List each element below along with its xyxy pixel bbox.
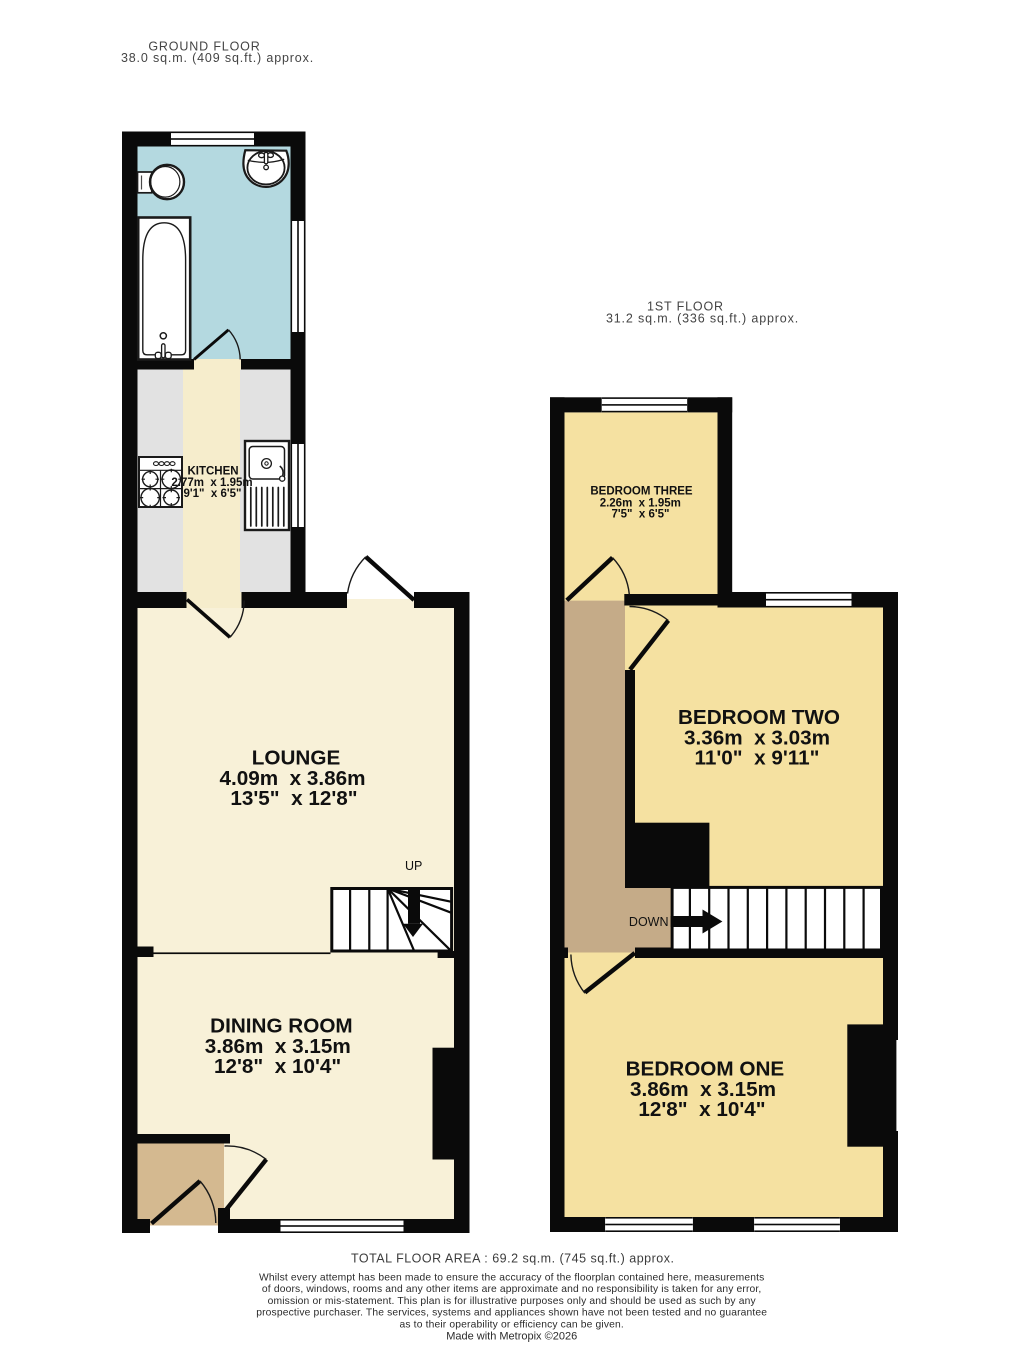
svg-text:omission or mis-statement. Thi: omission or mis-statement. This plan is …	[268, 1296, 757, 1307]
svg-text:9'1" x 6'5": 9'1" x 6'5"	[184, 488, 242, 500]
svg-text:prospective purchaser. The ser: prospective purchaser. The services, sys…	[256, 1308, 767, 1319]
svg-text:Whilst every attempt has been: Whilst every attempt has been made to en…	[259, 1272, 764, 1283]
svg-text:Made with Metropix ©2026: Made with Metropix ©2026	[446, 1331, 577, 1343]
svg-text:31.2 sq.m. (336 sq.ft.) approx: 31.2 sq.m. (336 sq.ft.) approx.	[606, 311, 799, 325]
svg-text:12'8" x 10'4": 12'8" x 10'4"	[214, 1055, 341, 1078]
svg-text:12'8" x 10'4": 12'8" x 10'4"	[638, 1098, 765, 1121]
svg-text:7'5" x 6'5": 7'5" x 6'5"	[612, 509, 670, 521]
svg-text:DOWN: DOWN	[629, 915, 669, 929]
svg-text:11'0" x 9'11": 11'0" x 9'11"	[695, 747, 820, 770]
svg-text:BEDROOM THREE: BEDROOM THREE	[590, 485, 693, 497]
svg-text:TOTAL FLOOR AREA : 69.2 sq.m.: TOTAL FLOOR AREA : 69.2 sq.m. (745 sq.ft…	[351, 1252, 675, 1266]
svg-text:as to their operability or eff: as to their operability or efficiency ca…	[400, 1320, 624, 1331]
svg-text:of doors, windows, rooms and a: of doors, windows, rooms and any other i…	[262, 1284, 762, 1295]
svg-text:2.26m x 1.95m: 2.26m x 1.95m	[600, 497, 681, 509]
svg-text:KITCHEN: KITCHEN	[187, 466, 238, 478]
svg-text:2.77m x 1.95m: 2.77m x 1.95m	[171, 477, 252, 489]
svg-text:38.0 sq.m. (409 sq.ft.) approx: 38.0 sq.m. (409 sq.ft.) approx.	[121, 51, 314, 65]
svg-text:UP: UP	[405, 859, 422, 873]
svg-text:13'5" x 12'8": 13'5" x 12'8"	[230, 787, 357, 810]
